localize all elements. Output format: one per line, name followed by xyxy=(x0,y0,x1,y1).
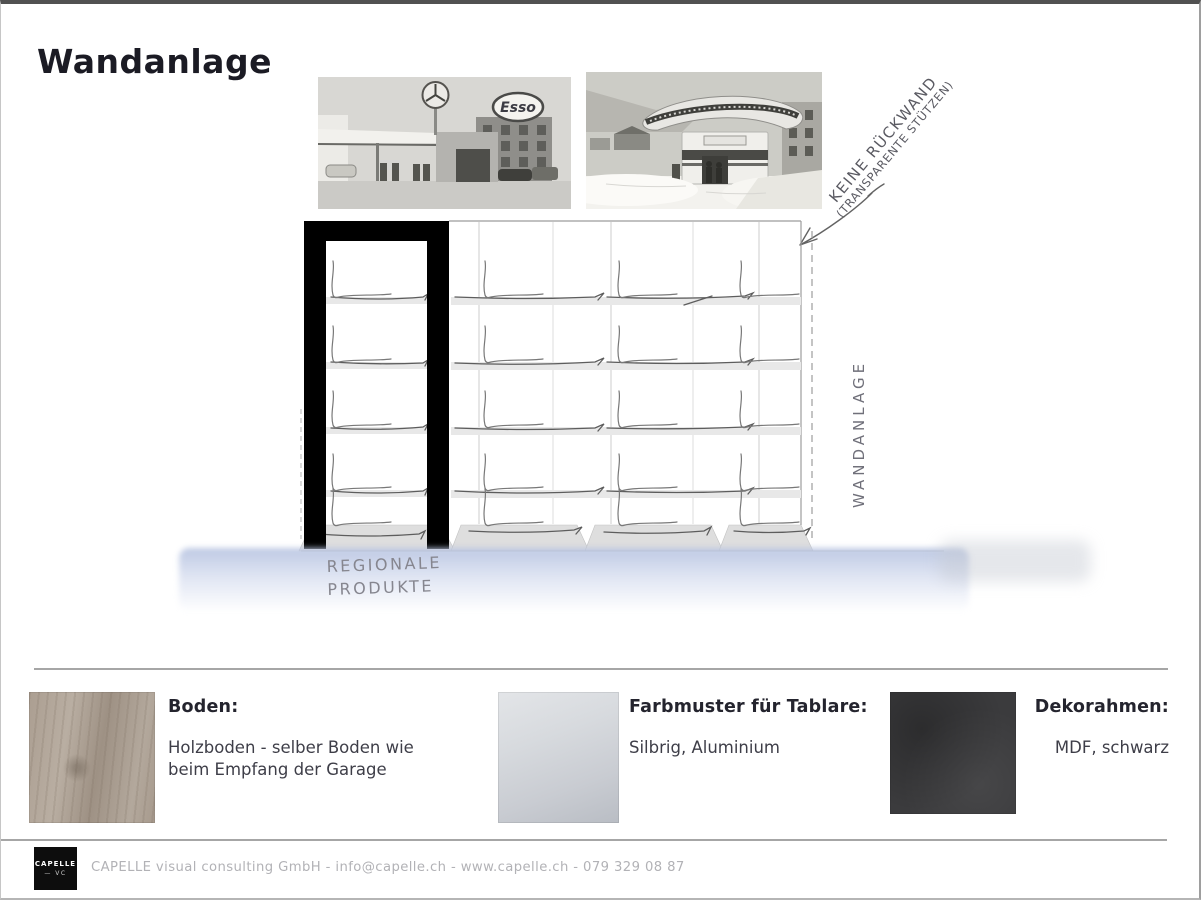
divider-line-top xyxy=(34,668,1168,670)
material-description-tablare: Silbrig, Aluminium xyxy=(629,737,889,759)
esso-sign: Esso xyxy=(493,93,543,121)
footer-contact-text: CAPELLE visual consulting GmbH - info@ca… xyxy=(91,860,685,875)
material-heading-tablare: Farbmuster für Tablare: xyxy=(629,697,868,717)
center-garage xyxy=(436,132,498,182)
black-mdf-swatch xyxy=(890,692,1016,814)
regionale-line2: PRODUKTE xyxy=(327,574,443,601)
divider-line-bottom xyxy=(1,839,1167,841)
esso-sign-text: Esso xyxy=(500,100,536,116)
shelf-hand-lines xyxy=(319,293,810,539)
watercolor-wash-right xyxy=(939,540,1091,582)
logo-text-line2: — VC xyxy=(44,870,66,877)
black-decor-frame xyxy=(304,221,449,549)
road xyxy=(318,181,571,209)
material-description-dekorahmen: MDF, schwarz xyxy=(999,737,1169,759)
watercolor-wash xyxy=(179,548,969,612)
label-regionale-produkte: REGIONALE PRODUKTE xyxy=(326,551,443,601)
material-heading-dekorahmen: Dekorahmen: xyxy=(999,697,1169,717)
photo-esso-garage: Esso xyxy=(318,77,571,209)
label-wandanlage-vertical: WANDANLAGE xyxy=(850,320,868,508)
kiosk xyxy=(672,132,768,184)
wood-floor-swatch xyxy=(29,692,155,823)
material-description-boden: Holzboden - selber Boden wie beim Empfan… xyxy=(168,737,434,781)
page-title: Wandanlage xyxy=(37,42,272,81)
capelle-logo: CAPELLE — VC xyxy=(34,847,77,890)
shelf-boards xyxy=(326,297,801,498)
silver-aluminium-swatch xyxy=(498,692,619,823)
esso-garage-illustration: Esso xyxy=(318,77,571,209)
logo-text-line1: CAPELLE xyxy=(35,860,76,868)
material-heading-boden: Boden: xyxy=(168,697,238,717)
presentation-page: Wandanlage xyxy=(0,0,1201,900)
